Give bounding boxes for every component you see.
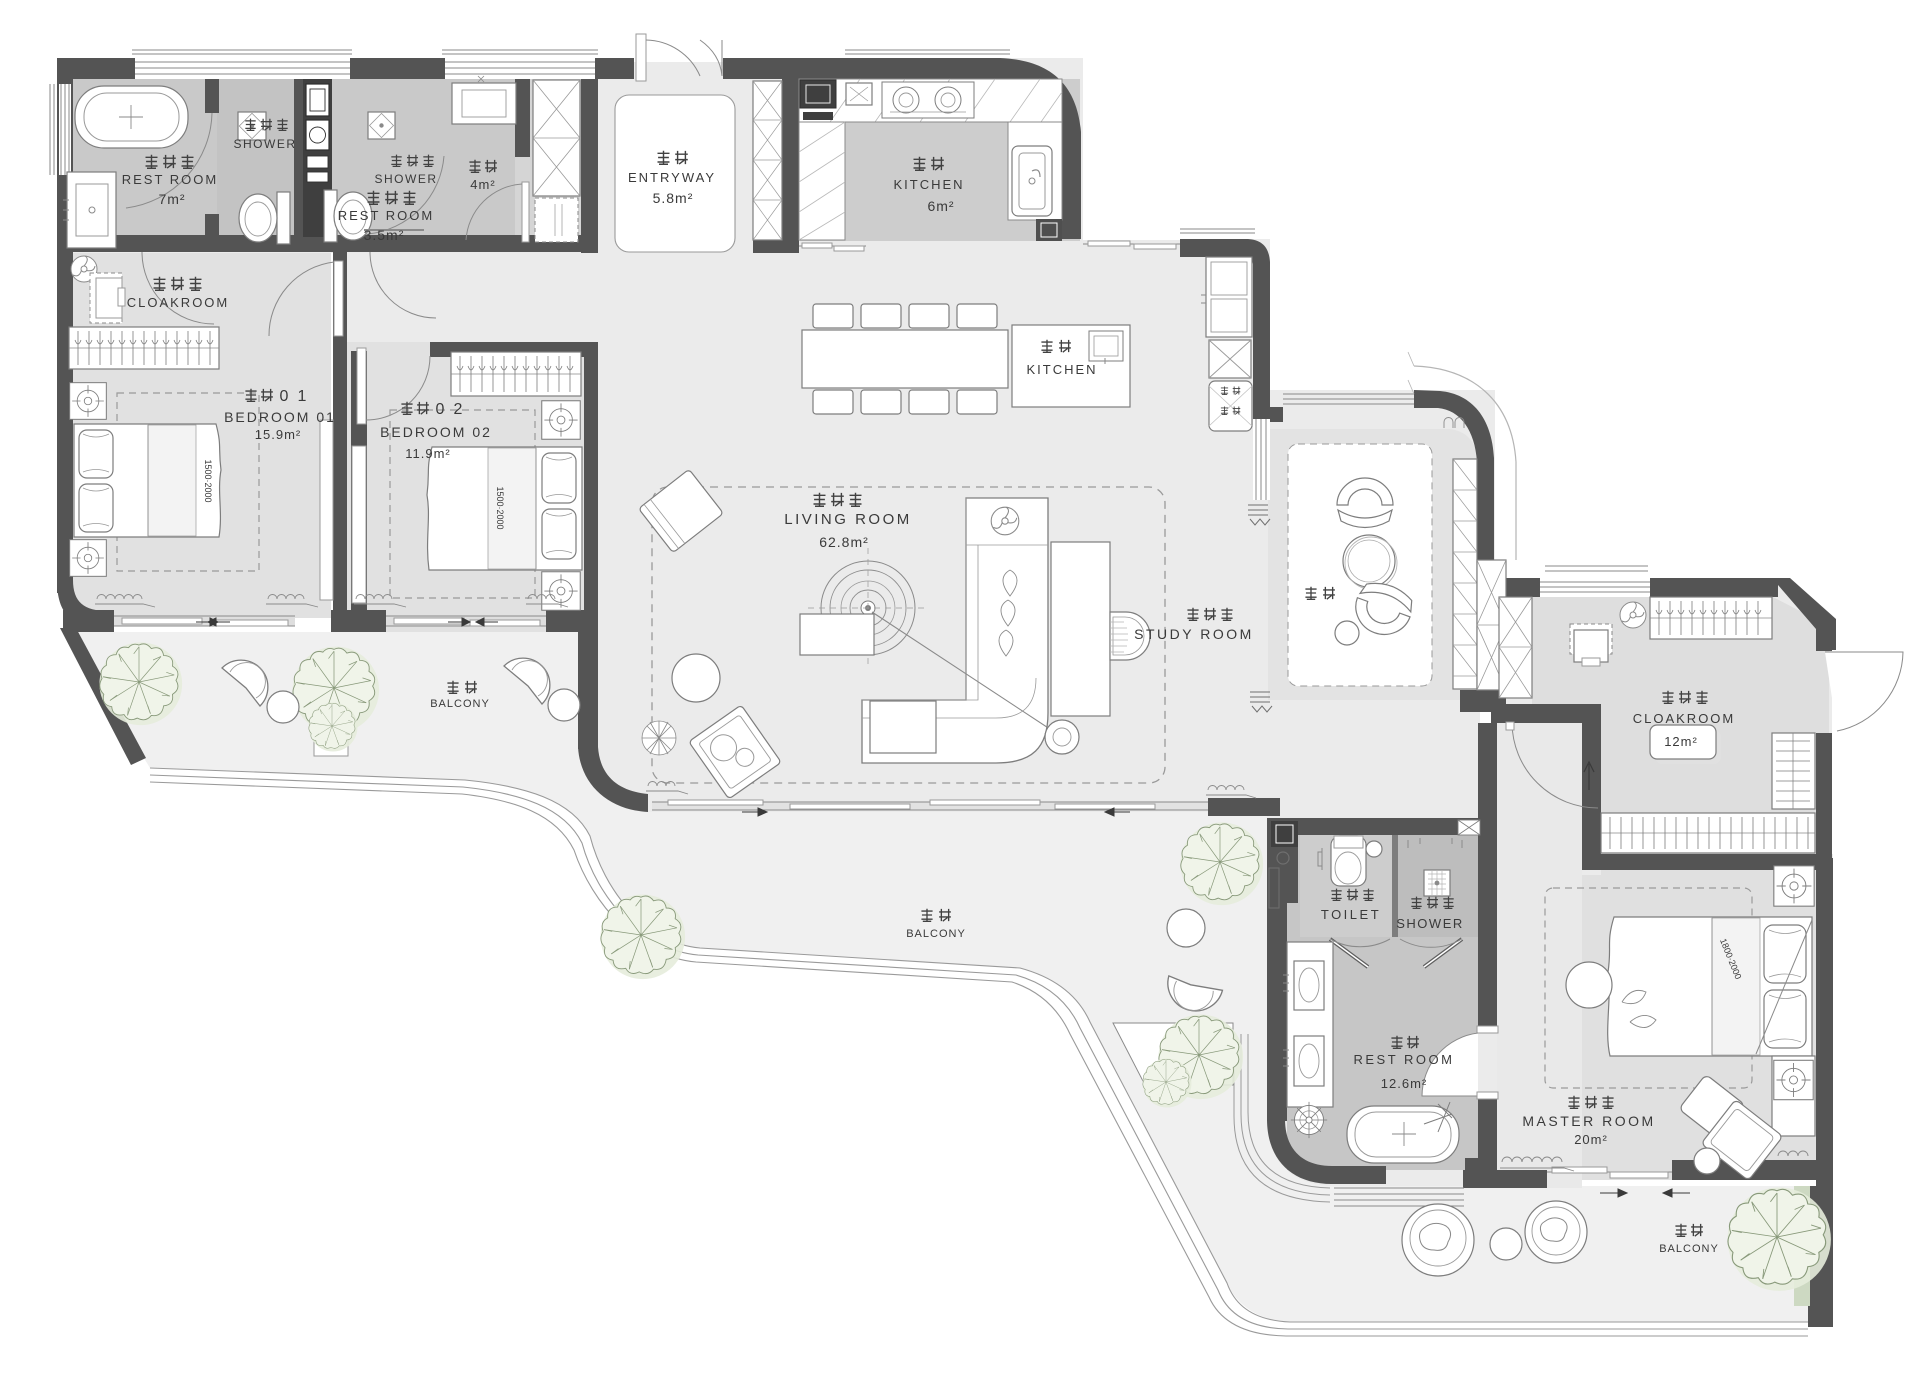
svg-text:12.6m²: 12.6m²: [1381, 1076, 1427, 1091]
svg-text:LIVING ROOM: LIVING ROOM: [784, 511, 912, 528]
svg-text:BEDROOM 01: BEDROOM 01: [224, 409, 336, 425]
svg-text:BALCONY: BALCONY: [1659, 1243, 1719, 1255]
svg-text:5.8m²: 5.8m²: [653, 190, 694, 206]
svg-text:STUDY ROOM: STUDY ROOM: [1134, 626, 1254, 642]
svg-text:15.9m²: 15.9m²: [255, 427, 301, 442]
svg-text:BALCONY: BALCONY: [430, 698, 490, 710]
svg-text:0: 0: [280, 388, 289, 405]
svg-text:REST ROOM: REST ROOM: [1354, 1052, 1455, 1067]
svg-text:6m²: 6m²: [927, 198, 954, 214]
svg-text:62.8m²: 62.8m²: [819, 534, 869, 550]
svg-text:REST ROOM: REST ROOM: [338, 208, 435, 223]
svg-text:1500·2000: 1500·2000: [495, 486, 505, 529]
svg-text:MASTER ROOM: MASTER ROOM: [1522, 1113, 1655, 1129]
svg-text:1: 1: [298, 388, 307, 405]
svg-text:SHOWER: SHOWER: [375, 172, 438, 186]
svg-text:TOILET: TOILET: [1321, 907, 1381, 922]
svg-text:4m²: 4m²: [470, 177, 495, 192]
svg-text:BEDROOM 02: BEDROOM 02: [380, 424, 492, 440]
svg-text:REST ROOM: REST ROOM: [122, 172, 219, 187]
svg-text:SHOWER: SHOWER: [234, 137, 297, 151]
svg-text:1500·2000: 1500·2000: [203, 459, 213, 502]
svg-text:0: 0: [436, 401, 445, 418]
svg-text:12m²: 12m²: [1664, 734, 1698, 749]
svg-text:CLOAKROOM: CLOAKROOM: [127, 295, 230, 310]
svg-text:11.9m²: 11.9m²: [405, 446, 451, 461]
svg-text:2: 2: [454, 401, 463, 418]
svg-text:ENTRYWAY: ENTRYWAY: [628, 170, 716, 185]
svg-text:BALCONY: BALCONY: [906, 928, 966, 940]
svg-text:CLOAKROOM: CLOAKROOM: [1633, 711, 1736, 726]
svg-text:3.5m²: 3.5m²: [364, 227, 405, 243]
svg-text:SHOWER: SHOWER: [1396, 916, 1464, 931]
svg-text:7m²: 7m²: [158, 191, 185, 207]
svg-text:20m²: 20m²: [1574, 1132, 1608, 1147]
svg-text:KITCHEN: KITCHEN: [893, 177, 964, 192]
svg-text:KITCHEN: KITCHEN: [1026, 362, 1097, 377]
